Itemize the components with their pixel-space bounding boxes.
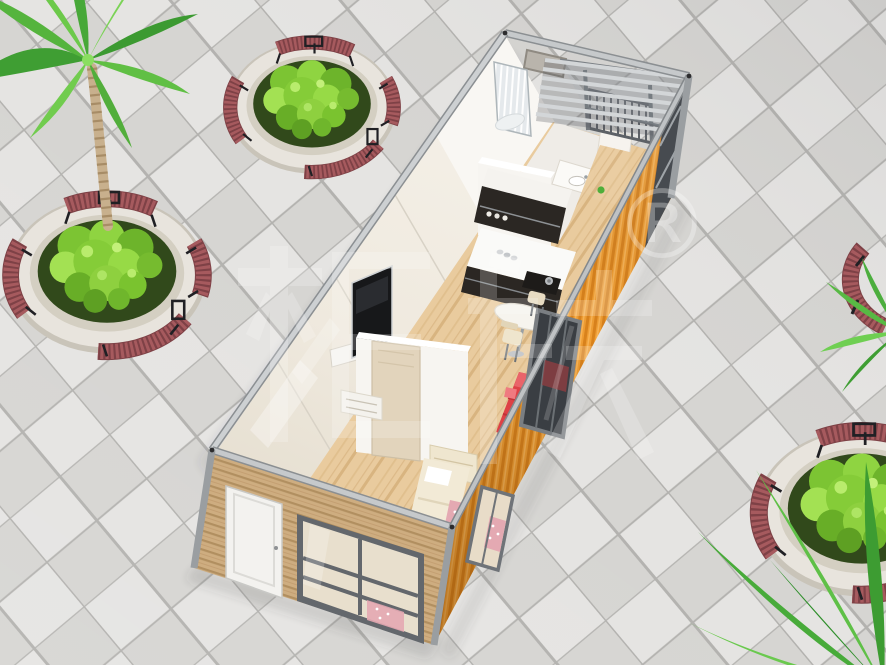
entry-door	[226, 486, 282, 598]
render-viewport: ® 柜族	[0, 0, 886, 665]
scene-render: ® 柜族	[0, 0, 886, 665]
counter-plant	[597, 186, 604, 193]
registered-mark: ®	[614, 169, 710, 281]
